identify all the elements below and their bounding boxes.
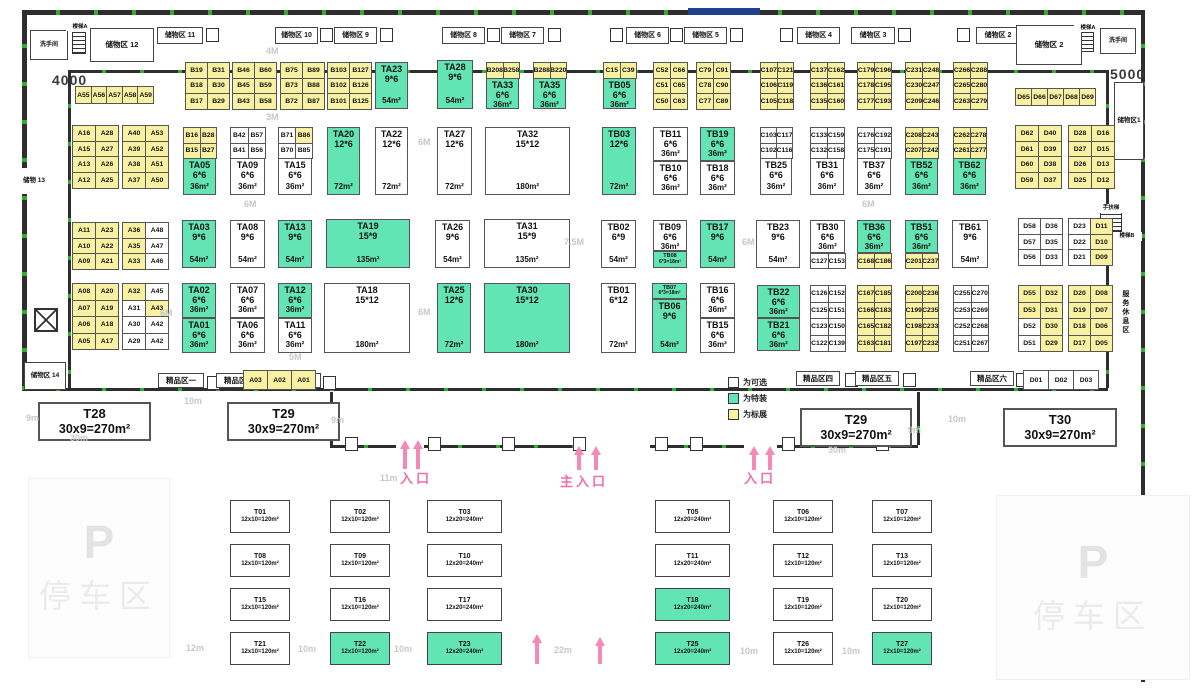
booth-cell[interactable]: A23 xyxy=(95,222,119,239)
booth-TB30[interactable]: TB306*636m² xyxy=(810,220,845,253)
booth-cell[interactable]: C186 xyxy=(874,253,892,269)
booth-cell[interactable]: B102 xyxy=(327,78,350,95)
booth-TA09[interactable]: TA096*636m² xyxy=(230,158,265,195)
booth-T29[interactable]: T2930x9=270m² xyxy=(800,408,912,447)
booth-cell[interactable]: A56 xyxy=(91,86,108,104)
booth-cell[interactable]: C255 xyxy=(953,285,972,303)
booth-cell[interactable]: C139 xyxy=(828,335,847,353)
booth-cell[interactable]: D01 xyxy=(1023,370,1049,390)
booth-cell[interactable]: C253 xyxy=(953,302,972,320)
booth-TB25[interactable]: TB256*636m² xyxy=(760,158,792,195)
booth-TA13[interactable]: TA139*654m² xyxy=(278,220,312,268)
booth-cell[interactable]: A30 xyxy=(122,316,146,334)
booth-cell[interactable]: C177 xyxy=(857,93,875,110)
booth-cell[interactable]: A57 xyxy=(106,86,123,104)
booth-TA08[interactable]: TA089*654m² xyxy=(230,220,265,268)
booth-T07[interactable]: T0712x10=120m² xyxy=(872,500,932,533)
booth-cell[interactable]: C262 xyxy=(953,127,971,144)
booth-cell[interactable]: C162 xyxy=(827,62,845,79)
booth-cell[interactable]: D15 xyxy=(1091,141,1115,158)
booth-TA20[interactable]: TA2012*672m² xyxy=(327,127,360,195)
booth-cell[interactable]: D65 xyxy=(1015,88,1032,106)
booth-cell[interactable]: C123 xyxy=(810,318,829,336)
booth-TB52[interactable]: TB526*636m² xyxy=(905,158,938,195)
booth-T17[interactable]: T1712x20=240m² xyxy=(427,588,502,621)
booth-cell[interactable]: D02 xyxy=(1048,370,1074,390)
booth-T15[interactable]: T1512x10=120m² xyxy=(230,588,290,621)
booth-cell[interactable]: C209 xyxy=(905,93,923,110)
booth-cell[interactable]: D19 xyxy=(1068,302,1091,320)
booth-T13[interactable]: T1312x10=120m² xyxy=(872,544,932,577)
booth-TB15[interactable]: TB156*636m² xyxy=(700,318,735,353)
booth-cell[interactable]: A02 xyxy=(267,370,292,390)
booth-cell[interactable]: C137 xyxy=(810,62,828,79)
booth-cell[interactable]: B126 xyxy=(349,78,372,95)
booth-T22[interactable]: T2212x10=120m² xyxy=(330,632,390,665)
booth-T06[interactable]: T0612x10=120m² xyxy=(773,500,833,533)
booth-T18[interactable]: T1812x20=240m² xyxy=(655,588,730,621)
booth-cell[interactable]: C192 xyxy=(874,127,892,144)
booth-cell[interactable]: C236 xyxy=(922,285,940,303)
booth-cell[interactable]: A06 xyxy=(72,316,96,334)
booth-cell[interactable]: D25 xyxy=(1068,172,1092,189)
booth-cell[interactable]: D69 xyxy=(1079,88,1096,106)
booth-cell[interactable]: D16 xyxy=(1091,125,1115,142)
booth-cell[interactable]: C159 xyxy=(827,127,845,144)
booth-cell[interactable]: A36 xyxy=(122,222,146,239)
booth-cell[interactable]: A29 xyxy=(122,333,146,351)
booth-TB17[interactable]: TB179*654m² xyxy=(700,220,735,268)
booth-T20[interactable]: T2012x10=120m² xyxy=(872,588,932,621)
booth-cell[interactable]: B15 xyxy=(183,143,201,160)
booth-cell[interactable]: D09 xyxy=(1090,249,1113,266)
booth-cell[interactable]: B125 xyxy=(349,93,372,110)
booth-T23[interactable]: T2312x20=240m² xyxy=(427,632,502,665)
booth-cell[interactable]: A35 xyxy=(122,238,146,255)
booth-cell[interactable]: B75 xyxy=(280,62,303,79)
booth-cell[interactable]: C103 xyxy=(760,127,777,144)
booth-cell[interactable]: A27 xyxy=(95,141,119,158)
booth-cell[interactable]: C127 xyxy=(810,253,829,269)
booth-cell[interactable]: C78 xyxy=(696,78,714,95)
booth-cell[interactable]: A51 xyxy=(145,156,169,173)
booth-TA12[interactable]: TA126*636m² xyxy=(278,283,312,318)
booth-cell[interactable]: D38 xyxy=(1038,156,1062,173)
booth-cell[interactable]: A47 xyxy=(145,238,169,255)
booth-cell[interactable]: C77 xyxy=(696,93,714,110)
booth-T27[interactable]: T2712x10=120m² xyxy=(872,632,932,665)
booth-cell[interactable]: C288 xyxy=(970,62,988,79)
booth-cell[interactable]: C200 xyxy=(905,285,923,303)
booth-cell[interactable]: A42 xyxy=(145,316,169,334)
booth-cell[interactable]: C263 xyxy=(953,93,971,110)
booth-cell[interactable]: A21 xyxy=(95,253,119,270)
booth-cell[interactable]: B46 xyxy=(232,62,255,79)
booth-cell[interactable]: A03 xyxy=(243,370,268,390)
booth-cell[interactable]: A25 xyxy=(95,172,119,189)
booth-T16[interactable]: T1612x10=120m² xyxy=(330,588,390,621)
booth-cell[interactable]: B57 xyxy=(248,127,267,144)
booth-TA05[interactable]: TA056*636m² xyxy=(183,158,216,195)
booth-cell[interactable]: C153 xyxy=(828,253,847,269)
booth-cell[interactable]: A28 xyxy=(95,125,119,142)
booth-cell[interactable]: B101 xyxy=(327,93,350,110)
booth-cell[interactable]: A46 xyxy=(145,253,169,270)
booth-TA23[interactable]: TA239*654m² xyxy=(375,62,408,109)
boutique-zone[interactable]: 精品区五 xyxy=(855,371,899,386)
booth-TB01[interactable]: TB016*1272m² xyxy=(601,283,636,353)
booth-TB02[interactable]: TB026*954m² xyxy=(601,220,636,268)
boutique-zone[interactable]: 精品区一 xyxy=(158,373,204,388)
booth-cell[interactable]: D08 xyxy=(1090,285,1113,303)
booth-cell[interactable]: B85 xyxy=(295,143,313,160)
booth-cell[interactable]: C66 xyxy=(670,62,688,79)
booth-cell[interactable]: D58 xyxy=(1018,218,1041,235)
booth-cell[interactable]: D18 xyxy=(1068,318,1091,336)
booth-cell[interactable]: C79 xyxy=(696,62,714,79)
booth-cell[interactable]: B88 xyxy=(302,78,325,95)
booth-cell[interactable]: D21 xyxy=(1068,249,1091,266)
booth-cell[interactable]: A31 xyxy=(122,300,146,318)
booth-cell[interactable]: A59 xyxy=(137,86,154,104)
booth-TB36[interactable]: TB366*636m² xyxy=(857,220,891,253)
booth-cell[interactable]: D23 xyxy=(1068,218,1091,235)
booth-TB62[interactable]: TB626*636m² xyxy=(953,158,986,195)
booth-TA26[interactable]: TA269*654m² xyxy=(435,220,470,268)
booth-cell[interactable]: A20 xyxy=(95,283,119,301)
booth-cell[interactable]: D55 xyxy=(1018,285,1041,303)
booth-cell[interactable]: B73 xyxy=(280,78,303,95)
booth-cell[interactable]: D67 xyxy=(1047,88,1064,106)
booth-cell[interactable]: C179 xyxy=(857,62,875,79)
booth-TA28[interactable]: TA289*654m² xyxy=(437,60,473,109)
booth-cell[interactable]: C193 xyxy=(874,93,892,110)
booth-cell[interactable]: B59 xyxy=(254,78,277,95)
booth-cell[interactable]: D22 xyxy=(1068,234,1091,251)
booth-cell[interactable]: C230 xyxy=(905,78,923,95)
booth-cell[interactable]: C107 xyxy=(760,62,778,79)
booth-cell[interactable]: B89 xyxy=(302,62,325,79)
booth-TA11[interactable]: TA116*636m² xyxy=(278,318,312,353)
booth-cell[interactable]: B42 xyxy=(230,127,249,144)
booth-cell[interactable]: D29 xyxy=(1040,335,1063,353)
booth-cell[interactable]: C182 xyxy=(874,318,892,336)
booth-cell[interactable]: B72 xyxy=(280,93,303,110)
booth-cell[interactable]: C280 xyxy=(970,78,988,95)
booth-cell[interactable]: B220 xyxy=(550,62,568,79)
booth-cell[interactable]: A55 xyxy=(75,86,92,104)
booth-cell[interactable]: D33 xyxy=(1040,249,1063,266)
booth-T03[interactable]: T0312x20=240m² xyxy=(427,500,502,533)
booth-cell[interactable]: C175 xyxy=(857,143,875,160)
booth-cell[interactable]: C50 xyxy=(653,93,671,110)
booth-cell[interactable]: A07 xyxy=(72,300,96,318)
booth-cell[interactable]: B16 xyxy=(183,127,201,144)
booth-TA01[interactable]: TA016*636m² xyxy=(182,318,216,353)
booth-cell[interactable]: C252 xyxy=(953,318,972,336)
booth-cell[interactable]: D05 xyxy=(1090,335,1113,353)
booth-T21[interactable]: T2112x10=120m² xyxy=(230,632,290,665)
booth-cell[interactable]: B208 xyxy=(486,62,504,79)
booth-cell[interactable]: C265 xyxy=(953,78,971,95)
booth-cell[interactable]: A40 xyxy=(122,125,146,142)
booth-cell[interactable]: D36 xyxy=(1040,218,1063,235)
booth-TB37[interactable]: TB376*636m² xyxy=(857,158,891,195)
booth-TA19[interactable]: TA1915*9135m² xyxy=(326,219,410,268)
booth-cell[interactable]: D60 xyxy=(1015,156,1039,173)
booth-T01[interactable]: T0112x10=120m² xyxy=(230,500,290,533)
booth-TA30[interactable]: TA3015*12180m² xyxy=(484,283,570,353)
booth-TB16[interactable]: TB166*636m² xyxy=(700,283,735,318)
booth-cell[interactable]: A26 xyxy=(95,156,119,173)
booth-cell[interactable]: C168 xyxy=(857,253,875,269)
booth-TA35[interactable]: TA356*636m² xyxy=(533,78,566,109)
booth-T28[interactable]: T2830x9=270m² xyxy=(38,402,151,441)
booth-cell[interactable]: D51 xyxy=(1018,335,1041,353)
booth-cell[interactable]: A10 xyxy=(72,238,96,255)
booth-TA02[interactable]: TA026*636m² xyxy=(182,283,216,318)
booth-cell[interactable]: A37 xyxy=(122,172,146,189)
booth-cell[interactable]: A15 xyxy=(72,141,96,158)
booth-TB18[interactable]: TB186*636m² xyxy=(700,161,735,195)
booth-cell[interactable]: C158 xyxy=(827,143,845,160)
booth-cell[interactable]: C198 xyxy=(905,318,923,336)
booth-cell[interactable]: C90 xyxy=(713,78,731,95)
booth-cell[interactable]: C246 xyxy=(922,93,940,110)
booth-cell[interactable]: C251 xyxy=(953,335,972,353)
booth-cell[interactable]: C178 xyxy=(857,78,875,95)
booth-TA15[interactable]: TA156*636m² xyxy=(278,158,312,195)
booth-cell[interactable]: C161 xyxy=(827,78,845,95)
booth-cell[interactable]: D57 xyxy=(1018,234,1041,251)
booth-TB31[interactable]: TB316*636m² xyxy=(810,158,844,195)
booth-cell[interactable]: A48 xyxy=(145,222,169,239)
booth-cell[interactable]: A08 xyxy=(72,283,96,301)
booth-TB08[interactable]: TB086*3=18m² xyxy=(653,251,687,268)
booth-cell[interactable]: C197 xyxy=(905,335,923,353)
booth-cell[interactable]: C261 xyxy=(953,143,971,160)
booth-TB21[interactable]: TB216*636m² xyxy=(757,318,800,351)
booth-cell[interactable]: C151 xyxy=(828,302,847,320)
booth-TA06[interactable]: TA066*636m² xyxy=(230,318,265,353)
booth-cell[interactable]: C183 xyxy=(874,302,892,320)
booth-cell[interactable]: A52 xyxy=(145,141,169,158)
booth-cell[interactable]: C279 xyxy=(970,93,988,110)
booth-TA25[interactable]: TA2512*672m² xyxy=(437,283,471,353)
booth-cell[interactable]: C15 xyxy=(603,62,621,79)
booth-cell[interactable]: A19 xyxy=(95,300,119,318)
booth-cell[interactable]: C51 xyxy=(653,78,671,95)
booth-cell[interactable]: D17 xyxy=(1068,335,1091,353)
booth-cell[interactable]: D53 xyxy=(1018,302,1041,320)
booth-cell[interactable]: C267 xyxy=(971,335,990,353)
booth-cell[interactable]: B70 xyxy=(278,143,296,160)
booth-cell[interactable]: D35 xyxy=(1040,234,1063,251)
booth-cell[interactable]: C195 xyxy=(874,78,892,95)
booth-cell[interactable]: B31 xyxy=(207,62,230,79)
booth-cell[interactable]: C166 xyxy=(857,302,875,320)
booth-cell[interactable]: D26 xyxy=(1068,156,1092,173)
booth-cell[interactable]: C135 xyxy=(810,93,828,110)
booth-cell[interactable]: D12 xyxy=(1091,172,1115,189)
booth-cell[interactable]: C199 xyxy=(905,302,923,320)
booth-cell[interactable]: D20 xyxy=(1068,285,1091,303)
booth-T11[interactable]: T1112x20=240m² xyxy=(655,544,730,577)
booth-TB05[interactable]: TB056*636m² xyxy=(603,78,636,109)
booth-TB22[interactable]: TB226*636m² xyxy=(757,285,800,318)
booth-cell[interactable]: C269 xyxy=(971,302,990,320)
booth-cell[interactable]: C237 xyxy=(922,253,940,269)
booth-T02[interactable]: T0212x10=120m² xyxy=(330,500,390,533)
boutique-zone[interactable]: 精品区四 xyxy=(796,371,840,386)
booth-cell[interactable]: B19 xyxy=(185,62,208,79)
booth-cell[interactable]: D07 xyxy=(1090,302,1113,320)
booth-cell[interactable]: B56 xyxy=(248,143,267,160)
booth-T05[interactable]: T0512x20=240m² xyxy=(655,500,730,533)
booth-cell[interactable]: C247 xyxy=(922,78,940,95)
booth-cell[interactable]: C235 xyxy=(922,302,940,320)
booth-cell[interactable]: C185 xyxy=(874,285,892,303)
booth-cell[interactable]: C105 xyxy=(760,93,778,110)
booth-cell[interactable]: A16 xyxy=(72,125,96,142)
booth-cell[interactable]: B18 xyxy=(185,78,208,95)
booth-cell[interactable]: B41 xyxy=(230,143,249,160)
booth-cell[interactable]: A05 xyxy=(72,333,96,351)
booth-cell[interactable]: A11 xyxy=(72,222,96,239)
booth-T10[interactable]: T1012x20=240m² xyxy=(427,544,502,577)
booth-cell[interactable]: C132 xyxy=(810,143,828,160)
booth-cell[interactable]: A01 xyxy=(291,370,316,390)
booth-TB07[interactable]: TB076*3=18m² xyxy=(652,283,687,299)
booth-cell[interactable]: C102 xyxy=(760,143,777,160)
booth-cell[interactable]: A13 xyxy=(72,156,96,173)
booth-T30[interactable]: T3030x9=270m² xyxy=(1003,408,1117,447)
booth-cell[interactable]: A32 xyxy=(122,283,146,301)
booth-cell[interactable]: C163 xyxy=(857,335,875,353)
booth-cell[interactable]: C176 xyxy=(857,127,875,144)
booth-cell[interactable]: B258 xyxy=(503,62,521,79)
booth-cell[interactable]: A53 xyxy=(145,125,169,142)
booth-cell[interactable]: C65 xyxy=(670,78,688,95)
booth-cell[interactable]: C270 xyxy=(971,285,990,303)
booth-cell[interactable]: D62 xyxy=(1015,125,1039,142)
booth-cell[interactable]: B60 xyxy=(254,62,277,79)
booth-cell[interactable]: B43 xyxy=(232,93,255,110)
booth-cell[interactable]: C116 xyxy=(776,143,793,160)
booth-cell[interactable]: C118 xyxy=(777,93,795,110)
booth-cell[interactable]: C208 xyxy=(905,127,923,144)
booth-cell[interactable]: D66 xyxy=(1031,88,1048,106)
booth-cell[interactable]: B29 xyxy=(207,93,230,110)
booth-cell[interactable]: D59 xyxy=(1015,172,1039,189)
booth-cell[interactable]: B288 xyxy=(533,62,551,79)
booth-cell[interactable]: C232 xyxy=(922,335,940,353)
booth-cell[interactable]: C63 xyxy=(670,93,688,110)
booth-cell[interactable]: C165 xyxy=(857,318,875,336)
booth-T19[interactable]: T1912x10=120m² xyxy=(773,588,833,621)
booth-cell[interactable]: B127 xyxy=(349,62,372,79)
booth-cell[interactable]: A12 xyxy=(72,172,96,189)
booth-cell[interactable]: B103 xyxy=(327,62,350,79)
booth-T26[interactable]: T2612x10=120m² xyxy=(773,632,833,665)
booth-cell[interactable]: A38 xyxy=(122,156,146,173)
booth-TB06[interactable]: TB069*654m² xyxy=(652,299,687,353)
booth-TA33[interactable]: TA336*636m² xyxy=(486,78,519,109)
booth-cell[interactable]: C119 xyxy=(777,78,795,95)
booth-T25[interactable]: T2512x20=240m² xyxy=(655,632,730,665)
booth-cell[interactable]: A17 xyxy=(95,333,119,351)
booth-cell[interactable]: C52 xyxy=(653,62,671,79)
booth-cell[interactable]: B30 xyxy=(207,78,230,95)
booth-cell[interactable]: A18 xyxy=(95,316,119,334)
booth-cell[interactable]: D40 xyxy=(1038,125,1062,142)
boutique-zone[interactable]: 精品区六 xyxy=(970,371,1014,386)
booth-cell[interactable]: A22 xyxy=(95,238,119,255)
booth-TA31[interactable]: TA3115*9135m² xyxy=(484,219,570,268)
booth-TA32[interactable]: TA3215*12180m² xyxy=(485,127,570,195)
booth-TA22[interactable]: TA2212*672m² xyxy=(375,127,408,195)
booth-cell[interactable]: D27 xyxy=(1068,141,1092,158)
booth-cell[interactable]: D06 xyxy=(1090,318,1113,336)
booth-TB61[interactable]: TB619*654m² xyxy=(952,220,988,268)
booth-cell[interactable]: C167 xyxy=(857,285,875,303)
booth-TB11[interactable]: TB116*636m² xyxy=(653,127,688,161)
booth-cell[interactable]: C196 xyxy=(874,62,892,79)
booth-TB10[interactable]: TB106*636m² xyxy=(653,161,688,195)
booth-cell[interactable]: B28 xyxy=(200,127,218,144)
booth-cell[interactable]: C122 xyxy=(810,335,829,353)
booth-cell[interactable]: D68 xyxy=(1063,88,1080,106)
booth-cell[interactable]: D11 xyxy=(1090,218,1113,235)
booth-cell[interactable]: C231 xyxy=(905,62,923,79)
booth-cell[interactable]: C278 xyxy=(970,127,988,144)
booth-cell[interactable]: C91 xyxy=(713,62,731,79)
booth-cell[interactable]: C181 xyxy=(874,335,892,353)
booth-cell[interactable]: C89 xyxy=(713,93,731,110)
booth-cell[interactable]: D03 xyxy=(1073,370,1099,390)
booth-TB03[interactable]: TB0312*672m² xyxy=(602,127,636,195)
booth-cell[interactable]: D37 xyxy=(1038,172,1062,189)
booth-cell[interactable]: C152 xyxy=(828,285,847,303)
booth-cell[interactable]: A42 xyxy=(145,333,169,351)
booth-cell[interactable]: A50 xyxy=(145,172,169,189)
booth-cell[interactable]: C277 xyxy=(970,143,988,160)
booth-TA07[interactable]: TA076*636m² xyxy=(230,283,265,318)
booth-cell[interactable]: C106 xyxy=(760,78,778,95)
booth-cell[interactable]: C243 xyxy=(922,127,940,144)
booth-cell[interactable]: C266 xyxy=(953,62,971,79)
booth-TB09[interactable]: TB096*636m² xyxy=(653,220,687,251)
booth-TA03[interactable]: TA039*654m² xyxy=(182,220,216,268)
booth-TA18[interactable]: TA1815*12180m² xyxy=(324,283,410,353)
booth-cell[interactable]: C150 xyxy=(828,318,847,336)
booth-cell[interactable]: B86 xyxy=(295,127,313,144)
booth-cell[interactable]: A39 xyxy=(122,141,146,158)
booth-cell[interactable]: B87 xyxy=(302,93,325,110)
booth-cell[interactable]: C126 xyxy=(810,285,829,303)
booth-cell[interactable]: D31 xyxy=(1040,302,1063,320)
booth-cell[interactable]: D30 xyxy=(1040,318,1063,336)
booth-cell[interactable]: C207 xyxy=(905,143,923,160)
booth-cell[interactable]: C117 xyxy=(776,127,793,144)
booth-cell[interactable]: C133 xyxy=(810,127,828,144)
booth-cell[interactable]: D52 xyxy=(1018,318,1041,336)
booth-cell[interactable]: D10 xyxy=(1090,234,1113,251)
booth-cell[interactable]: C39 xyxy=(620,62,638,79)
booth-cell[interactable]: D28 xyxy=(1068,125,1092,142)
booth-TB23[interactable]: TB239*654m² xyxy=(756,220,800,268)
booth-cell[interactable]: C201 xyxy=(905,253,923,269)
